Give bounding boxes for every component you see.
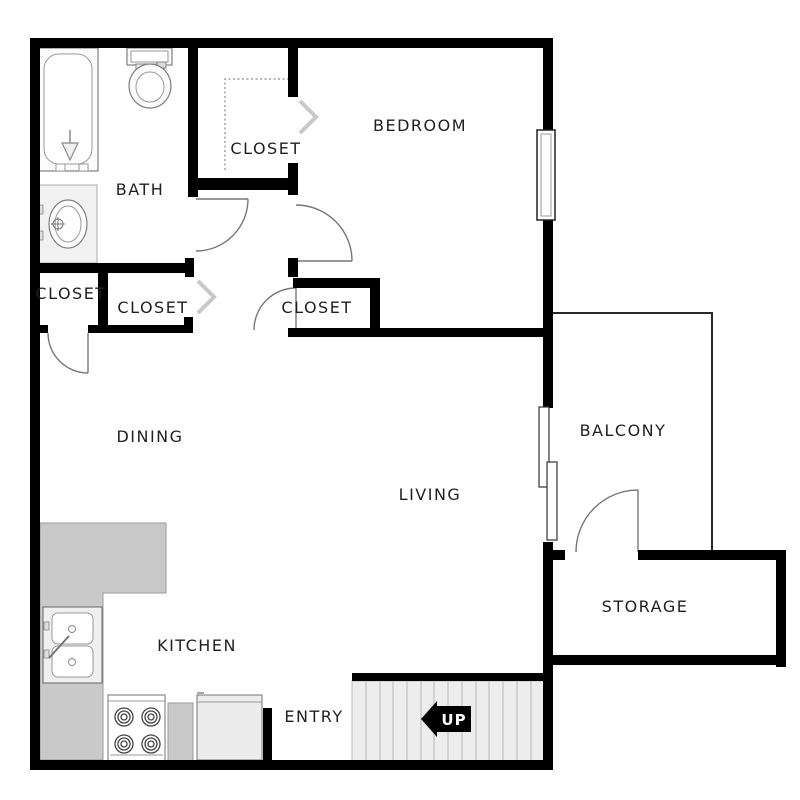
up-arrow-label: UP <box>441 711 466 729</box>
vanity-sink <box>38 185 97 263</box>
counter-block <box>168 703 193 763</box>
balcony-door <box>576 490 638 552</box>
faucet-handle <box>44 650 49 658</box>
refrigerator <box>197 693 262 760</box>
stairs: UP <box>352 681 545 762</box>
wall-segment <box>30 38 40 770</box>
wall-segment <box>88 325 108 333</box>
toilet <box>127 48 172 108</box>
closet-opening-chevron <box>198 281 214 313</box>
room-label-closet-bedroom: CLOSET <box>281 298 352 317</box>
room-label-living: LIVING <box>399 485 462 504</box>
wall-segment <box>352 673 552 681</box>
sink-bowl-bottom <box>52 646 93 677</box>
toilet-bowl-inner <box>136 72 164 102</box>
wall-segment <box>184 317 193 333</box>
wall-segment <box>188 178 298 190</box>
stove <box>108 695 165 762</box>
wall-segment <box>288 48 298 97</box>
wall-segment <box>30 760 552 770</box>
bedroom-window <box>537 130 555 220</box>
wall-segment <box>553 550 565 560</box>
room-label-dining: DINING <box>116 427 183 446</box>
bathtub-foot <box>56 164 65 171</box>
toilet-tank-lid <box>131 51 168 62</box>
wall-segment <box>638 550 786 560</box>
wall-segment <box>543 542 553 770</box>
kitchen-sink <box>43 607 102 683</box>
sink-bowl-top <box>52 613 93 644</box>
wall-segment <box>30 263 193 273</box>
room-label-storage: STORAGE <box>602 597 689 616</box>
bathtub-foot <box>79 164 88 171</box>
sliding-door-panel <box>547 462 557 540</box>
wall-segment <box>263 708 272 770</box>
walls <box>30 38 786 770</box>
room-label-bath: BATH <box>116 180 164 199</box>
bath-door <box>196 199 248 251</box>
closet-opening-chevron <box>300 101 316 133</box>
floor-plan: UP <box>0 0 800 800</box>
room-label-kitchen: KITCHEN <box>157 636 237 655</box>
room-labels: BATH CLOSET BEDROOM CLOSET CLOSET CLOSET… <box>35 116 688 726</box>
wall-segment <box>543 38 553 132</box>
wall-segment <box>288 258 298 277</box>
room-label-closet-left: CLOSET <box>35 284 106 303</box>
wall-segment <box>98 273 108 333</box>
room-label-bedroom: BEDROOM <box>373 116 467 135</box>
wall-segment <box>293 278 380 288</box>
wall-segment <box>30 325 48 333</box>
bedroom-door <box>296 205 352 261</box>
room-label-entry: ENTRY <box>284 707 343 726</box>
refrigerator-outline <box>197 695 262 760</box>
wall-segment <box>30 38 549 48</box>
faucet-handle <box>44 622 49 630</box>
wall-segment <box>188 48 198 197</box>
bathtub <box>38 48 98 171</box>
closet-left-door <box>48 333 88 373</box>
room-label-closet-bath: CLOSET <box>230 139 301 158</box>
wall-segment <box>543 219 553 408</box>
wall-segment <box>776 550 786 667</box>
room-label-balcony: BALCONY <box>580 421 667 440</box>
wall-segment <box>108 325 193 333</box>
wall-segment <box>288 328 553 337</box>
wall-segment <box>288 163 298 195</box>
wall-segment <box>553 655 786 665</box>
room-label-closet-middle: CLOSET <box>117 298 188 317</box>
